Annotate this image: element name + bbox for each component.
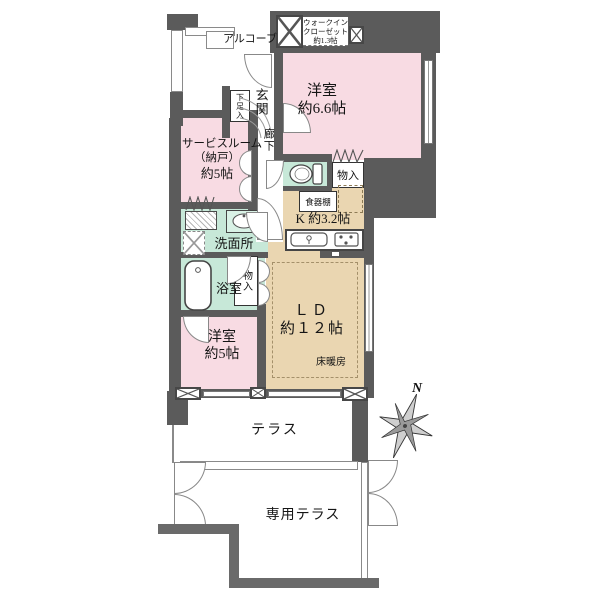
storage-a-label: 物入 [337,167,359,183]
corridor-label: 廊下 [261,128,274,152]
cupboard-box: 食器棚 [299,191,337,212]
entrance-door [244,54,272,88]
wall [320,250,364,258]
service-closet-body [185,211,217,230]
cupboard-label: 食器棚 [305,196,331,208]
private-terrace-right-line [361,462,368,586]
pillar-x-icon [342,387,368,401]
pillar-x-icon [250,387,266,399]
floor-plan: 下足入 物入 食器棚 物入 [0,0,600,600]
bathroom-label: 浴室 [209,281,249,297]
private-terrace-wall [229,578,379,588]
washer-space [183,231,205,255]
west-room-5-label: 洋室 約5帖 [186,330,258,364]
terrace-gate-leaf [174,494,206,526]
terrace-boundary-line [172,425,174,463]
kitchen-label: K 約3.2帖 [283,211,363,227]
terrace-gate-leaf [368,493,398,526]
wall [222,86,230,138]
toilet-icon [287,161,325,187]
window [268,391,341,397]
pillar-x-icon [175,387,201,400]
terrace-label: テラス [247,423,303,440]
terrace-divider [180,461,358,470]
wall [257,304,266,391]
window [203,391,250,397]
window [424,60,433,144]
genkan-label: 玄関 [253,88,269,116]
terrace-gate-leaf [174,462,206,494]
kitchen-wall-niche [331,251,340,257]
wall-thin-section [171,30,183,92]
washroom-label: 洗面所 [203,236,265,252]
floor-heating-label: 床暖房 [302,357,360,369]
folding-door-icon [332,149,364,163]
private-terrace-wall [158,524,239,534]
refrigerator-space [338,185,363,213]
wall [364,158,436,218]
compass-north-label: N [411,381,423,396]
wall-terrace-flank [352,398,368,462]
alcove-label: アルコーブ [218,33,282,46]
private-terrace-label: 専用テラス [260,508,346,525]
service-room-label: サービスルーム （納戸） 約5帖 [182,138,252,181]
bathtub-icon [184,260,212,311]
folding-door-icon [185,196,215,211]
ld-label: ＬＤ 約１２帖 [268,302,356,338]
wall [169,118,181,395]
west-room-66-label: 洋室 約6.6帖 [278,82,366,118]
kitchen-counter [285,229,364,251]
wic-label: ウォークイン クローゼット 約1.3帖 [301,18,350,45]
pillar-x-icon [349,26,364,44]
compass-icon: N [370,378,446,466]
sink-icon [291,233,327,246]
window [365,264,373,352]
